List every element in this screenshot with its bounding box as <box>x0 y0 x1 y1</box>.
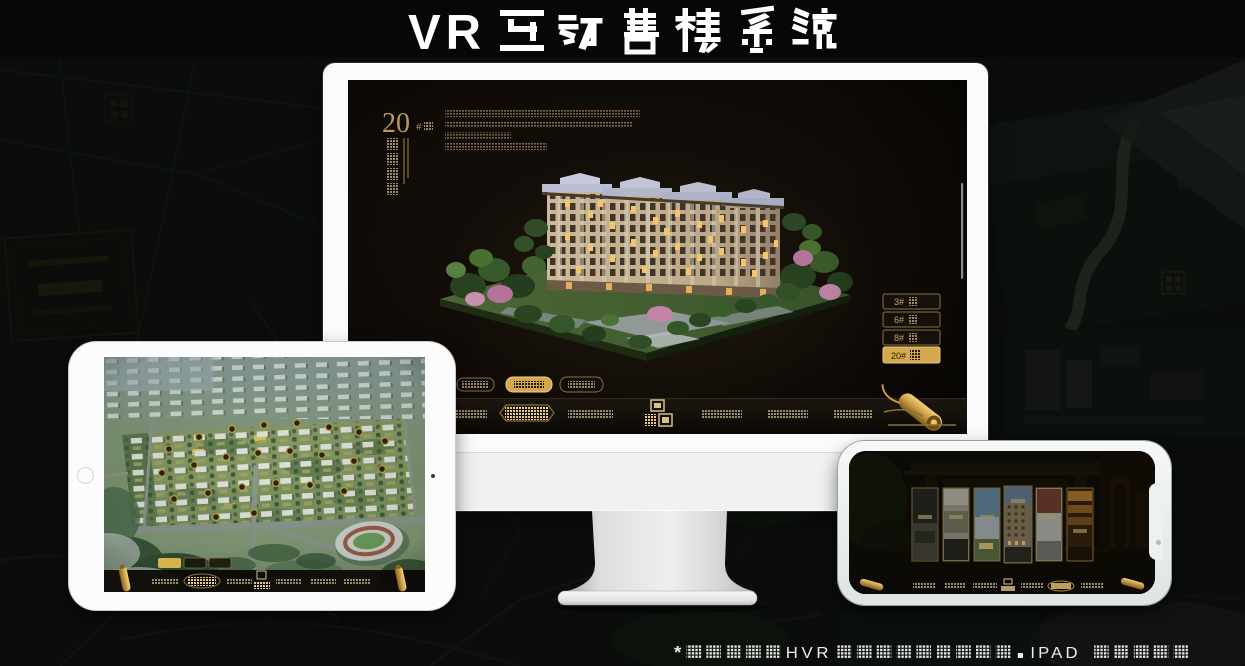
svg-text:*: * <box>674 642 683 662</box>
svg-text:6#: 6# <box>894 315 904 325</box>
svg-text:3#: 3# <box>894 297 904 307</box>
svg-text:20: 20 <box>382 108 410 139</box>
svg-text:8#: 8# <box>894 333 904 343</box>
svg-text:VR: VR <box>408 6 486 57</box>
svg-text:IPAD: IPAD <box>1030 644 1080 662</box>
svg-text:#: # <box>416 121 422 133</box>
svg-text:HVR: HVR <box>786 644 832 662</box>
svg-text:20#: 20# <box>891 351 906 361</box>
